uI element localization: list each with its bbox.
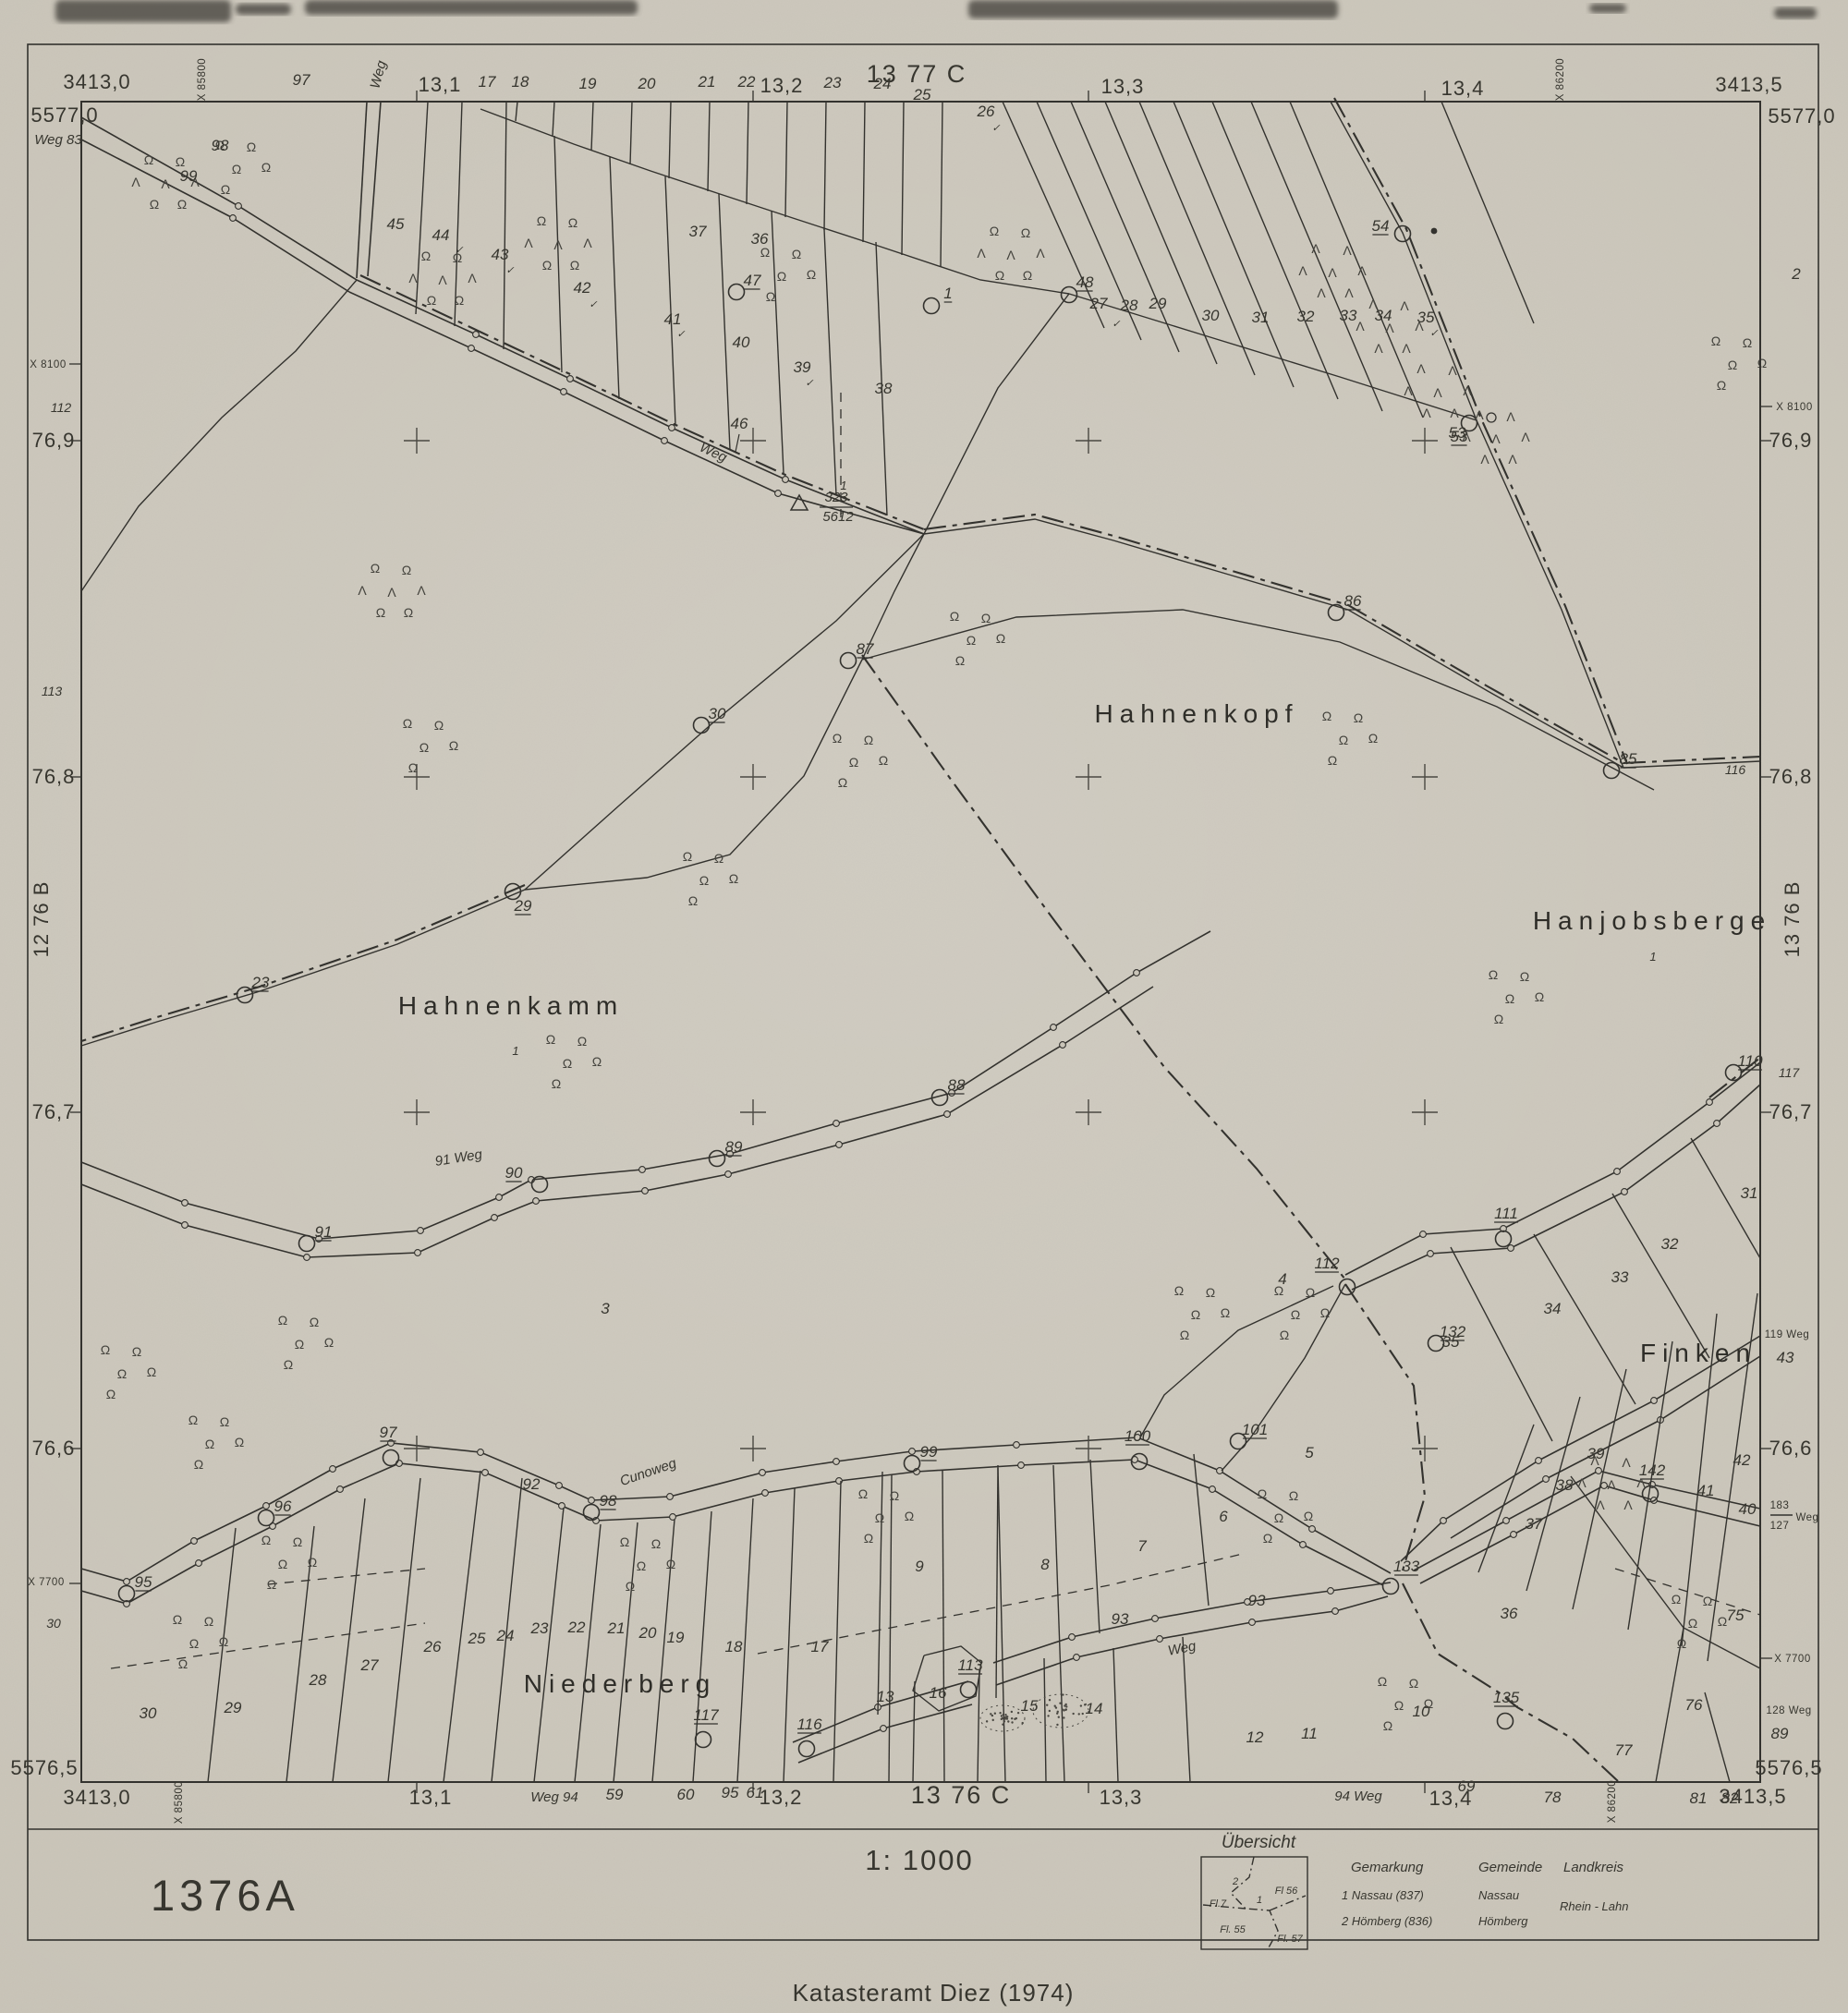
parcel-number: 44 bbox=[432, 226, 450, 244]
deciduous-tree-icon: Ω bbox=[278, 1557, 287, 1571]
border-coordinate-label: Weg 83 bbox=[34, 132, 82, 148]
parcel-number: 43 bbox=[492, 246, 509, 263]
parcel-number: 29 bbox=[224, 1699, 242, 1716]
parcel-number: 20 bbox=[638, 1624, 657, 1642]
boundary-point-marker bbox=[196, 1560, 202, 1567]
deciduous-tree-icon: Ω bbox=[434, 718, 444, 733]
survey-point-number: 95 bbox=[135, 1573, 152, 1591]
border-coordinate-label: 112 bbox=[51, 400, 72, 415]
parcel-number: 15 bbox=[1021, 1697, 1039, 1715]
parcel-number: 38 bbox=[875, 380, 893, 397]
border-coordinate-label: Weg bbox=[1796, 1512, 1819, 1523]
parcel-number: 42 bbox=[1733, 1451, 1751, 1469]
conifer-tree-icon: Λ bbox=[1463, 383, 1472, 398]
border-coordinate-label: 128 Weg bbox=[1766, 1705, 1811, 1716]
deciduous-tree-icon: Ω bbox=[807, 267, 816, 282]
deciduous-tree-icon: Ω bbox=[1280, 1328, 1289, 1342]
conifer-tree-icon: Λ bbox=[1328, 265, 1337, 280]
parcel-number: 35 bbox=[1417, 309, 1435, 326]
conifer-tree-icon: Λ bbox=[1622, 1455, 1631, 1470]
border-coordinate-label: 13,3 bbox=[1100, 1786, 1143, 1809]
deciduous-tree-icon: Ω bbox=[1743, 335, 1752, 350]
scrub-stipple bbox=[1007, 1720, 1009, 1722]
border-coordinate-label: 43 bbox=[1777, 1349, 1794, 1366]
deciduous-tree-icon: Ω bbox=[219, 1634, 228, 1649]
conifer-tree-icon: Λ bbox=[1480, 452, 1489, 467]
border-coordinate-label: 19 bbox=[579, 75, 597, 92]
deciduous-tree-icon: Ω bbox=[1494, 1012, 1503, 1026]
triangulation-number: 5612 bbox=[822, 509, 854, 525]
survey-check-tick: ✓ bbox=[505, 265, 515, 276]
deciduous-tree-icon: Ω bbox=[792, 247, 801, 261]
legend-flur-label: 2 bbox=[1232, 1876, 1238, 1887]
deciduous-tree-icon: Ω bbox=[194, 1457, 203, 1472]
deciduous-tree-icon: Ω bbox=[295, 1337, 304, 1352]
border-coordinate-label: 13 77 C bbox=[867, 60, 967, 88]
border-coordinate-label: 60 bbox=[677, 1786, 695, 1803]
survey-point-number: 48 bbox=[1076, 273, 1094, 291]
survey-check-tick: ✓ bbox=[991, 123, 1001, 134]
deciduous-tree-icon: Ω bbox=[1505, 991, 1514, 1006]
conifer-tree-icon: Λ bbox=[1636, 1475, 1646, 1490]
border-coordinate-label: 30 bbox=[46, 1616, 61, 1631]
deciduous-tree-icon: Ω bbox=[688, 893, 698, 908]
scan-smudge-artifact bbox=[1774, 7, 1817, 18]
legend-flur-label: Fl. 57 bbox=[1277, 1934, 1303, 1945]
survey-check-tick: ✓ bbox=[455, 245, 464, 256]
boundary-point-marker bbox=[589, 1498, 595, 1504]
scrub-stipple bbox=[1011, 1717, 1013, 1719]
deciduous-tree-icon: Ω bbox=[1174, 1283, 1184, 1298]
deciduous-tree-icon: Ω bbox=[666, 1557, 675, 1571]
survey-point-number: 29 bbox=[514, 897, 532, 915]
deciduous-tree-icon: Ω bbox=[563, 1056, 572, 1071]
conifer-tree-icon: Λ bbox=[1311, 241, 1320, 256]
boundary-point-marker bbox=[833, 1459, 840, 1465]
boundary-point-marker bbox=[1069, 1634, 1076, 1641]
scrub-stipple bbox=[1049, 1710, 1051, 1712]
survey-point-number: 47 bbox=[744, 272, 761, 289]
parcel-number: 29 bbox=[1149, 295, 1167, 312]
deciduous-tree-icon: Ω bbox=[996, 631, 1005, 646]
deciduous-tree-icon: Ω bbox=[1322, 709, 1331, 723]
parcel-number: 22 bbox=[567, 1619, 586, 1636]
border-coordinate-label: 13 76 C bbox=[911, 1781, 1012, 1809]
survey-point-number: 98 bbox=[600, 1492, 617, 1510]
boundary-point-marker bbox=[725, 1171, 732, 1178]
conifer-tree-icon: Λ bbox=[408, 271, 418, 285]
survey-point-number: 110 bbox=[1737, 1052, 1763, 1070]
parcel-number: 40 bbox=[733, 333, 750, 351]
border-coordinate-label: 13 76 B bbox=[1781, 881, 1804, 958]
deciduous-tree-icon: Ω bbox=[1320, 1305, 1330, 1320]
field-name-label: Finken bbox=[1640, 1339, 1757, 1367]
deciduous-tree-icon: Ω bbox=[777, 269, 786, 284]
deciduous-tree-icon: Ω bbox=[1354, 710, 1363, 725]
survey-check-tick: ✓ bbox=[589, 299, 598, 310]
conifer-tree-icon: Λ bbox=[583, 236, 592, 250]
border-coordinate-label: 3413,0 bbox=[63, 1786, 130, 1809]
conifer-tree-icon: Λ bbox=[1400, 298, 1409, 313]
border-coordinate-label: X 86200 bbox=[1607, 1780, 1618, 1823]
deciduous-tree-icon: Ω bbox=[204, 1614, 213, 1629]
parcel-number: 6 bbox=[1219, 1508, 1228, 1525]
deciduous-tree-icon: Ω bbox=[879, 753, 888, 768]
parcel-number: 9 bbox=[915, 1558, 924, 1575]
boundary-point-marker bbox=[667, 1494, 674, 1500]
border-coordinate-label: 76,6 bbox=[32, 1437, 76, 1460]
parcel-number: 45 bbox=[387, 215, 405, 233]
parcel-number: 42 bbox=[574, 279, 591, 297]
parcel-number: 93 bbox=[1112, 1610, 1129, 1628]
scrub-stipple bbox=[1014, 1718, 1015, 1720]
conifer-tree-icon: Λ bbox=[1006, 248, 1015, 262]
boundary-point-marker bbox=[1511, 1532, 1517, 1538]
parcel-number: 41 bbox=[664, 310, 682, 328]
deciduous-tree-icon: Ω bbox=[1368, 731, 1378, 746]
parcel-number: 32 bbox=[1661, 1235, 1679, 1253]
boundary-point-marker bbox=[1714, 1121, 1720, 1127]
deciduous-tree-icon: Ω bbox=[864, 1531, 873, 1546]
scrub-stipple bbox=[1011, 1711, 1013, 1713]
deciduous-tree-icon: Ω bbox=[537, 213, 546, 228]
parcel-number: 99 bbox=[180, 167, 198, 185]
deciduous-tree-icon: Ω bbox=[173, 1612, 182, 1627]
boundary-point-marker bbox=[468, 346, 475, 352]
scrub-stipple bbox=[991, 1715, 993, 1716]
boundary-point-marker bbox=[1441, 1518, 1447, 1524]
parcel-number: 46 bbox=[731, 415, 748, 432]
deciduous-tree-icon: Ω bbox=[267, 1577, 276, 1592]
deciduous-tree-icon: Ω bbox=[766, 289, 775, 304]
parcel-number: 1 bbox=[1649, 950, 1656, 964]
parcel-number: 30 bbox=[140, 1704, 157, 1722]
deciduous-tree-icon: Ω bbox=[150, 197, 159, 212]
boundary-point-marker bbox=[1503, 1518, 1510, 1524]
parcel-number: 27 bbox=[1089, 295, 1108, 312]
boundary-point-marker bbox=[669, 425, 675, 431]
parcel-number: 35 bbox=[1442, 1333, 1460, 1351]
scan-smudge-artifact bbox=[55, 0, 231, 22]
legend-table-header: Landkreis bbox=[1563, 1860, 1624, 1875]
deciduous-tree-icon: Ω bbox=[408, 760, 418, 775]
conifer-tree-icon: Λ bbox=[1344, 285, 1354, 300]
border-coordinate-label: 76,7 bbox=[1769, 1100, 1813, 1123]
parcel-number: 24 bbox=[496, 1627, 515, 1644]
deciduous-tree-icon: Ω bbox=[1717, 378, 1726, 393]
legend-table-header: Gemeinde bbox=[1478, 1860, 1542, 1875]
deciduous-tree-icon: Ω bbox=[1289, 1488, 1298, 1503]
deciduous-tree-icon: Ω bbox=[1021, 225, 1030, 240]
border-coordinate-label: 81 bbox=[1690, 1789, 1708, 1807]
deciduous-tree-icon: Ω bbox=[620, 1534, 629, 1549]
boundary-point-marker bbox=[330, 1466, 336, 1473]
survey-point-number: 133 bbox=[1393, 1558, 1420, 1575]
conifer-tree-icon: Λ bbox=[131, 175, 140, 189]
scrub-stipple bbox=[1002, 1723, 1003, 1725]
deciduous-tree-icon: Ω bbox=[261, 160, 271, 175]
border-coordinate-label: 18 bbox=[512, 73, 529, 91]
border-coordinate-label: 95 bbox=[722, 1784, 739, 1801]
deciduous-tree-icon: Ω bbox=[568, 215, 577, 230]
deciduous-tree-icon: Ω bbox=[261, 1533, 271, 1547]
parcel-number: 98 bbox=[212, 137, 229, 154]
deciduous-tree-icon: Ω bbox=[132, 1344, 141, 1359]
parcel-number: 8 bbox=[1040, 1556, 1050, 1573]
deciduous-tree-icon: Ω bbox=[1263, 1531, 1272, 1546]
border-coordinate-label: 183 bbox=[1770, 1500, 1790, 1511]
border-coordinate-label: 3413,0 bbox=[63, 70, 130, 93]
border-coordinate-label: X 8100 bbox=[30, 359, 66, 370]
boundary-point-marker bbox=[760, 1470, 766, 1476]
parcel-number: 77 bbox=[1615, 1741, 1633, 1759]
deciduous-tree-icon: Ω bbox=[1728, 358, 1737, 372]
boundary-point-marker bbox=[1060, 1042, 1066, 1049]
parcel-number: 75 bbox=[1727, 1607, 1745, 1624]
parcel-number: 10 bbox=[1413, 1703, 1430, 1720]
boundary-point-marker bbox=[1614, 1169, 1621, 1175]
deciduous-tree-icon: Ω bbox=[1206, 1285, 1215, 1300]
parcel-number: 37 bbox=[1526, 1515, 1543, 1533]
conifer-tree-icon: Λ bbox=[524, 236, 533, 250]
deciduous-tree-icon: Ω bbox=[1383, 1718, 1392, 1733]
scan-smudge-artifact bbox=[968, 0, 1338, 18]
deciduous-tree-icon: Ω bbox=[427, 293, 436, 308]
boundary-point-marker bbox=[1420, 1231, 1427, 1238]
scrub-stipple bbox=[1082, 1713, 1084, 1715]
deciduous-tree-icon: Ω bbox=[189, 1636, 199, 1651]
parcel-number: 1 bbox=[512, 1044, 518, 1058]
parcel-number: 3 bbox=[601, 1300, 610, 1317]
parcel-number: 92 bbox=[523, 1475, 541, 1493]
conifer-tree-icon: Λ bbox=[358, 583, 367, 598]
border-coordinate-label: 78 bbox=[1544, 1789, 1562, 1806]
deciduous-tree-icon: Ω bbox=[849, 755, 858, 770]
scrub-stipple bbox=[1065, 1705, 1067, 1707]
legend-table-cell: 2 Hömberg (836) bbox=[1341, 1914, 1432, 1928]
parcel-number: 16 bbox=[930, 1684, 947, 1702]
border-coordinate-label: X 7700 bbox=[28, 1577, 64, 1588]
scrub-stipple bbox=[1046, 1704, 1048, 1705]
border-coordinate-label: 116 bbox=[1725, 762, 1746, 777]
scrub-stipple bbox=[1062, 1693, 1064, 1695]
boundary-point-marker bbox=[670, 1514, 676, 1521]
parcel-number: 19 bbox=[667, 1629, 685, 1646]
deciduous-tree-icon: Ω bbox=[1328, 753, 1337, 768]
deciduous-tree-icon: Ω bbox=[371, 561, 380, 576]
conifer-tree-icon: Λ bbox=[1491, 431, 1501, 446]
deciduous-tree-icon: Ω bbox=[278, 1313, 287, 1328]
border-coordinate-label: 76,9 bbox=[32, 429, 76, 452]
deciduous-tree-icon: Ω bbox=[1535, 989, 1544, 1004]
boundary-point-marker bbox=[639, 1167, 646, 1173]
deciduous-tree-icon: Ω bbox=[1180, 1328, 1189, 1342]
boundary-point-marker bbox=[1707, 1099, 1713, 1106]
parcel-number: 28 bbox=[309, 1671, 327, 1689]
parcel-number: 31 bbox=[1252, 309, 1270, 326]
survey-point-number: 91 bbox=[315, 1223, 333, 1241]
conifer-tree-icon: Λ bbox=[1402, 341, 1411, 356]
boundary-point-marker bbox=[478, 1449, 484, 1456]
deciduous-tree-icon: Ω bbox=[651, 1536, 661, 1551]
conifer-tree-icon: Λ bbox=[1508, 452, 1517, 467]
parcel-number: 37 bbox=[689, 223, 707, 240]
boundary-point-marker bbox=[1596, 1468, 1602, 1474]
deciduous-tree-icon: Ω bbox=[1489, 967, 1498, 982]
deciduous-tree-icon: Ω bbox=[890, 1488, 899, 1503]
deciduous-tree-icon: Ω bbox=[864, 733, 873, 747]
survey-point-number: 54 bbox=[1372, 217, 1390, 235]
conifer-tree-icon: Λ bbox=[1298, 263, 1307, 278]
scan-smudge-artifact bbox=[305, 0, 638, 15]
legend-flur-label: Fl 56 bbox=[1275, 1886, 1298, 1897]
deciduous-tree-icon: Ω bbox=[995, 268, 1004, 283]
border-coordinate-label: 3413,5 bbox=[1715, 73, 1782, 96]
scrub-stipple bbox=[1003, 1714, 1004, 1716]
conifer-tree-icon: Λ bbox=[387, 585, 396, 600]
deciduous-tree-icon: Ω bbox=[1304, 1509, 1313, 1523]
deciduous-tree-icon: Ω bbox=[147, 1364, 156, 1379]
legend-flur-label: 1 bbox=[1257, 1895, 1262, 1906]
border-coordinate-label: 22 bbox=[737, 73, 756, 91]
parcel-number: 27 bbox=[360, 1656, 379, 1674]
border-coordinate-label: 97 bbox=[293, 71, 310, 89]
boundary-point-marker bbox=[881, 1726, 887, 1732]
point-dot bbox=[1431, 228, 1438, 235]
scrub-stipple bbox=[1001, 1715, 1003, 1716]
survey-point-number: 112 bbox=[1314, 1255, 1340, 1272]
boundary-point-marker bbox=[1622, 1189, 1628, 1195]
border-coordinate-label: 23 bbox=[823, 74, 842, 91]
conifer-tree-icon: Λ bbox=[438, 273, 447, 287]
parcel-number: 14 bbox=[1086, 1700, 1103, 1717]
border-coordinate-label: 113 bbox=[42, 684, 63, 698]
border-coordinate-label: 13,3 bbox=[1101, 75, 1145, 98]
survey-check-tick: ✓ bbox=[1112, 319, 1121, 330]
boundary-point-marker bbox=[1328, 1588, 1334, 1595]
parcel-number: 36 bbox=[751, 230, 769, 248]
survey-point-number: 113 bbox=[957, 1656, 983, 1674]
conifer-tree-icon: Λ bbox=[1404, 383, 1413, 398]
scrub-stipple bbox=[994, 1712, 996, 1714]
deciduous-tree-icon: Ω bbox=[117, 1366, 127, 1381]
scrub-stipple bbox=[1003, 1720, 1005, 1722]
border-coordinate-label: 76,9 bbox=[1769, 429, 1813, 452]
boundary-point-marker bbox=[561, 389, 567, 395]
deciduous-tree-icon: Ω bbox=[1274, 1510, 1283, 1525]
deciduous-tree-icon: Ω bbox=[875, 1510, 884, 1525]
parcel-number: 17 bbox=[811, 1638, 829, 1655]
deciduous-tree-icon: Ω bbox=[626, 1579, 635, 1594]
boundary-point-marker bbox=[1508, 1245, 1514, 1252]
conifer-tree-icon: Λ bbox=[1357, 263, 1367, 278]
deciduous-tree-icon: Ω bbox=[1703, 1594, 1712, 1608]
survey-point-number: 89 bbox=[725, 1138, 743, 1156]
survey-point-number: 116 bbox=[796, 1716, 822, 1733]
legend-title: Übersicht bbox=[1222, 1833, 1296, 1852]
boundary-point-marker bbox=[762, 1490, 769, 1497]
deciduous-tree-icon: Ω bbox=[188, 1413, 198, 1427]
deciduous-tree-icon: Ω bbox=[990, 224, 999, 238]
deciduous-tree-icon: Ω bbox=[421, 249, 431, 263]
border-coordinate-label: 89 bbox=[1771, 1725, 1789, 1742]
survey-point-number: 86 bbox=[1344, 592, 1362, 610]
parcel-number: 33 bbox=[1340, 307, 1357, 324]
border-coordinate-label: 13,1 bbox=[419, 73, 462, 96]
deciduous-tree-icon: Ω bbox=[1378, 1674, 1387, 1689]
parcel-number: 34 bbox=[1375, 307, 1392, 324]
deciduous-tree-icon: Ω bbox=[683, 849, 692, 864]
conifer-tree-icon: Λ bbox=[553, 237, 563, 252]
parcel-number: 18 bbox=[725, 1638, 743, 1655]
sheet-number-label: 1376A bbox=[151, 1871, 299, 1920]
scrub-stipple bbox=[1011, 1721, 1013, 1723]
legend-flur-label: Fl. 55 bbox=[1220, 1924, 1246, 1935]
border-coordinate-label: 127 bbox=[1770, 1521, 1790, 1532]
border-coordinate-label: 94 Weg bbox=[1334, 1789, 1382, 1804]
boundary-point-marker bbox=[783, 477, 789, 483]
parcel-number: 41 bbox=[1697, 1482, 1715, 1499]
scan-smudge-artifact bbox=[236, 4, 291, 15]
parcel-number: 25 bbox=[468, 1630, 486, 1647]
deciduous-tree-icon: Ω bbox=[1672, 1592, 1681, 1607]
scrub-stipple bbox=[1058, 1716, 1060, 1718]
deciduous-tree-icon: Ω bbox=[592, 1054, 602, 1069]
scrub-stipple bbox=[1063, 1716, 1064, 1718]
parcel-number: 76 bbox=[1685, 1696, 1703, 1714]
scrub-stipple bbox=[999, 1712, 1001, 1714]
survey-point-number: 111 bbox=[1494, 1205, 1518, 1222]
survey-point-number: 96 bbox=[274, 1498, 292, 1515]
conifer-tree-icon: Λ bbox=[1416, 361, 1426, 376]
boundary-point-marker bbox=[662, 438, 668, 444]
deciduous-tree-icon: Ω bbox=[293, 1534, 302, 1549]
boundary-point-marker bbox=[1651, 1398, 1658, 1404]
deciduous-tree-icon: Ω bbox=[310, 1315, 319, 1329]
border-coordinate-label: 117 bbox=[1779, 1065, 1801, 1080]
scrub-stipple bbox=[1064, 1708, 1066, 1710]
border-coordinate-label: 21 bbox=[698, 73, 716, 91]
conifer-tree-icon: Λ bbox=[1433, 385, 1442, 400]
survey-point-number: 87 bbox=[857, 640, 874, 658]
deciduous-tree-icon: Ω bbox=[324, 1335, 334, 1350]
border-coordinate-label: 13,2 bbox=[760, 74, 804, 97]
deciduous-tree-icon: Ω bbox=[950, 609, 959, 624]
parcel-number: 93 bbox=[1248, 1592, 1266, 1609]
conifer-tree-icon: Λ bbox=[1577, 1475, 1587, 1490]
deciduous-tree-icon: Ω bbox=[1757, 356, 1767, 370]
scrub-stipple bbox=[1059, 1703, 1061, 1704]
boundary-point-marker bbox=[1157, 1636, 1163, 1643]
boundary-point-marker bbox=[492, 1215, 498, 1221]
parcel-number: 5 bbox=[1305, 1444, 1314, 1461]
scrub-stipple bbox=[1003, 1716, 1005, 1718]
parcel-number: 4 bbox=[1278, 1270, 1286, 1288]
border-coordinate-label: X 85800 bbox=[197, 58, 208, 101]
legend-table-cell: Rhein - Lahn bbox=[1560, 1899, 1628, 1913]
field-name-label: Hanjobsberge bbox=[1533, 906, 1771, 935]
survey-point-number: 1 bbox=[943, 285, 952, 302]
deciduous-tree-icon: Ω bbox=[101, 1342, 110, 1357]
deciduous-tree-icon: Ω bbox=[542, 258, 552, 273]
deciduous-tree-icon: Ω bbox=[221, 182, 230, 197]
deciduous-tree-icon: Ω bbox=[419, 740, 429, 755]
border-coordinate-label: 5577,0 bbox=[30, 103, 98, 127]
border-coordinate-label: 25 bbox=[913, 86, 931, 103]
border-coordinate-label: 119 Weg bbox=[1765, 1329, 1809, 1340]
parcel-number: 40 bbox=[1739, 1500, 1757, 1518]
boundary-point-marker bbox=[482, 1470, 489, 1476]
